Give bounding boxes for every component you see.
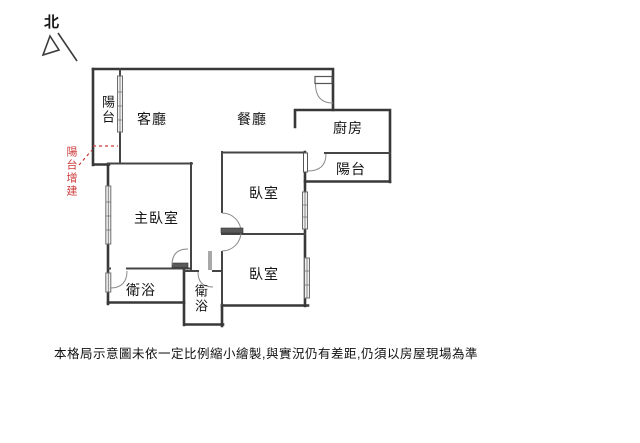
north-label: 北 bbox=[44, 11, 59, 32]
floor-plan-screenshot: 北 陽台 客廳 餐廳 廚房 陽台 主臥室 臥室 臥室 衛浴 衛浴 陽台增建 本格… bbox=[0, 0, 640, 443]
balcony-extension-leader-line bbox=[79, 150, 92, 165]
room-label-balcony-right: 陽台 bbox=[336, 159, 366, 179]
window-bedroom1-right bbox=[303, 192, 308, 229]
room-label-bedroom-2: 臥室 bbox=[249, 264, 279, 284]
room-label-balcony-left: 陽台 bbox=[98, 95, 117, 125]
window-master-left bbox=[106, 186, 111, 244]
north-arrow-tail bbox=[58, 33, 77, 61]
north-arrow-head bbox=[43, 36, 59, 55]
entry-door bbox=[315, 77, 333, 104]
room-label-master-bedroom: 主臥室 bbox=[134, 208, 179, 228]
balcony-extension-marks bbox=[79, 146, 118, 165]
room-label-living: 客廳 bbox=[137, 109, 167, 129]
balcony-right-door bbox=[304, 153, 327, 172]
room-label-kitchen: 廚房 bbox=[333, 118, 363, 138]
balcony-extension-note: 陽台增建 bbox=[63, 146, 79, 198]
room-label-bathroom-1: 衛浴 bbox=[126, 280, 156, 300]
bedrooms-double-door bbox=[221, 213, 243, 251]
bathroom2-door bbox=[198, 251, 213, 287]
bathroom1-door bbox=[110, 271, 127, 288]
north-arrow-icon bbox=[43, 33, 77, 61]
window-living-balcony bbox=[118, 76, 123, 132]
window-bathroom1-left bbox=[106, 273, 111, 292]
wall-top bbox=[93, 69, 333, 110]
room-label-dining: 餐廳 bbox=[237, 109, 267, 129]
room-label-bathroom-2: 衛浴 bbox=[191, 284, 210, 314]
master-bedroom-door bbox=[172, 249, 188, 268]
floor-plan-canvas bbox=[0, 0, 640, 443]
disclaimer-text: 本格局示意圖未依一定比例縮小繪製,與實況仍有差距,仍須以房屋現場為準 bbox=[54, 343, 478, 362]
room-label-bedroom-1: 臥室 bbox=[249, 183, 279, 203]
window-bedroom2-right bbox=[305, 258, 310, 298]
hallway-wall-stub bbox=[208, 251, 212, 270]
